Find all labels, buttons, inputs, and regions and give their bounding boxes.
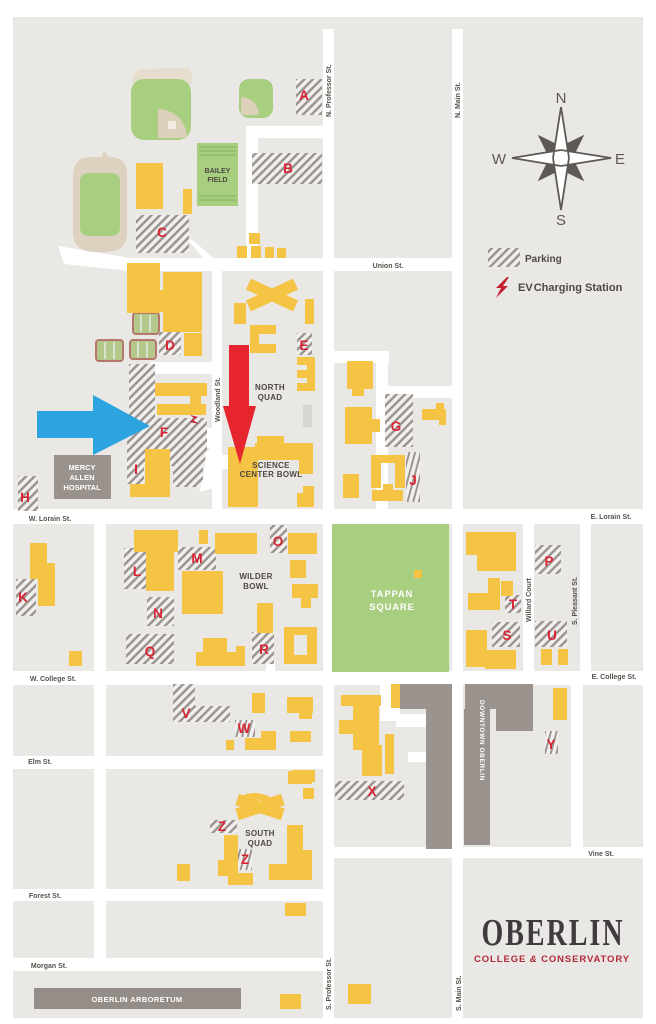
svg-text:S: S	[556, 212, 566, 229]
svg-text:MERCY: MERCY	[68, 463, 95, 472]
svg-text:Forest St.: Forest St.	[29, 893, 61, 900]
svg-text:SOUTH: SOUTH	[245, 829, 275, 838]
svg-text:S. Pleasant St.: S. Pleasant St.	[572, 577, 579, 625]
svg-text:QUAD: QUAD	[258, 393, 283, 402]
svg-text:U: U	[547, 628, 557, 643]
svg-text:X: X	[367, 784, 376, 799]
svg-text:N. Main St.: N. Main St.	[455, 82, 462, 118]
svg-text:QUAD: QUAD	[248, 839, 273, 848]
svg-text:Morgan St.: Morgan St.	[31, 963, 67, 970]
svg-text:M: M	[191, 551, 202, 566]
svg-text:H: H	[20, 490, 30, 505]
svg-text:P: P	[544, 554, 553, 569]
svg-text:E: E	[615, 151, 625, 168]
svg-text:I: I	[134, 462, 138, 477]
svg-text:HOSPITAL: HOSPITAL	[63, 483, 101, 492]
svg-text:NORTH: NORTH	[255, 383, 285, 392]
svg-text:Willard Court: Willard Court	[526, 577, 533, 622]
svg-text:Z: Z	[218, 819, 226, 834]
svg-text:L: L	[133, 564, 141, 579]
svg-text:COLLEGE & CONSERVATORY: COLLEGE & CONSERVATORY	[474, 954, 630, 965]
svg-text:B: B	[283, 161, 293, 176]
svg-text:Elm St.: Elm St.	[28, 759, 52, 766]
svg-text:N. Professor St.: N. Professor St.	[326, 64, 333, 117]
svg-text:Q: Q	[145, 644, 156, 659]
svg-text:C: C	[157, 225, 167, 240]
svg-text:N: N	[153, 606, 163, 621]
svg-text:G: G	[391, 419, 402, 434]
svg-text:E: E	[299, 338, 308, 353]
svg-text:E. College St.: E. College St.	[592, 674, 637, 681]
svg-text:DOWNTOWN OBERLIN: DOWNTOWN OBERLIN	[478, 700, 485, 781]
svg-text:Woodland St.: Woodland St.	[215, 377, 222, 422]
svg-text:N: N	[556, 90, 567, 107]
svg-text:W. College St.: W. College St.	[30, 676, 76, 683]
svg-text:K: K	[18, 590, 28, 605]
svg-text:Z: Z	[241, 852, 249, 867]
svg-text:CENTER BOWL: CENTER BOWL	[240, 470, 303, 479]
svg-text:BAILEY: BAILEY	[205, 168, 231, 175]
svg-text:Union St.: Union St.	[373, 263, 404, 270]
svg-text:ALLEN: ALLEN	[70, 473, 95, 482]
svg-text:R: R	[259, 642, 269, 657]
svg-text:A: A	[299, 88, 309, 103]
svg-text:EVCharging Station: EVCharging Station	[518, 282, 623, 294]
svg-text:OBERLIN: OBERLIN	[481, 912, 624, 954]
svg-text:SQUARE: SQUARE	[369, 602, 414, 613]
svg-text:W: W	[238, 721, 251, 736]
svg-text:E. Lorain St.: E. Lorain St.	[591, 514, 632, 521]
svg-text:F: F	[160, 425, 168, 440]
svg-text:TAPPAN: TAPPAN	[371, 589, 413, 600]
svg-text:WILDER: WILDER	[239, 572, 272, 581]
svg-text:FIELD: FIELD	[207, 177, 227, 184]
svg-text:S. Professor St.: S. Professor St.	[326, 958, 333, 1010]
svg-text:OBERLIN ARBORETUM: OBERLIN ARBORETUM	[91, 995, 182, 1004]
svg-text:V: V	[181, 706, 190, 721]
svg-text:J: J	[409, 473, 417, 488]
svg-text:W: W	[492, 151, 507, 168]
svg-text:S. Main St.: S. Main St.	[456, 976, 463, 1011]
svg-text:S: S	[502, 628, 511, 643]
svg-text:BOWL: BOWL	[243, 582, 269, 591]
svg-text:O: O	[273, 534, 284, 549]
svg-text:Y: Y	[546, 737, 555, 752]
svg-text:SCIENCE: SCIENCE	[252, 461, 290, 470]
svg-text:D: D	[165, 338, 175, 353]
svg-text:Parking: Parking	[525, 254, 562, 265]
svg-text:W. Lorain St.: W. Lorain St.	[29, 516, 71, 523]
svg-text:Vine St.: Vine St.	[588, 851, 614, 858]
svg-text:T: T	[509, 597, 518, 612]
